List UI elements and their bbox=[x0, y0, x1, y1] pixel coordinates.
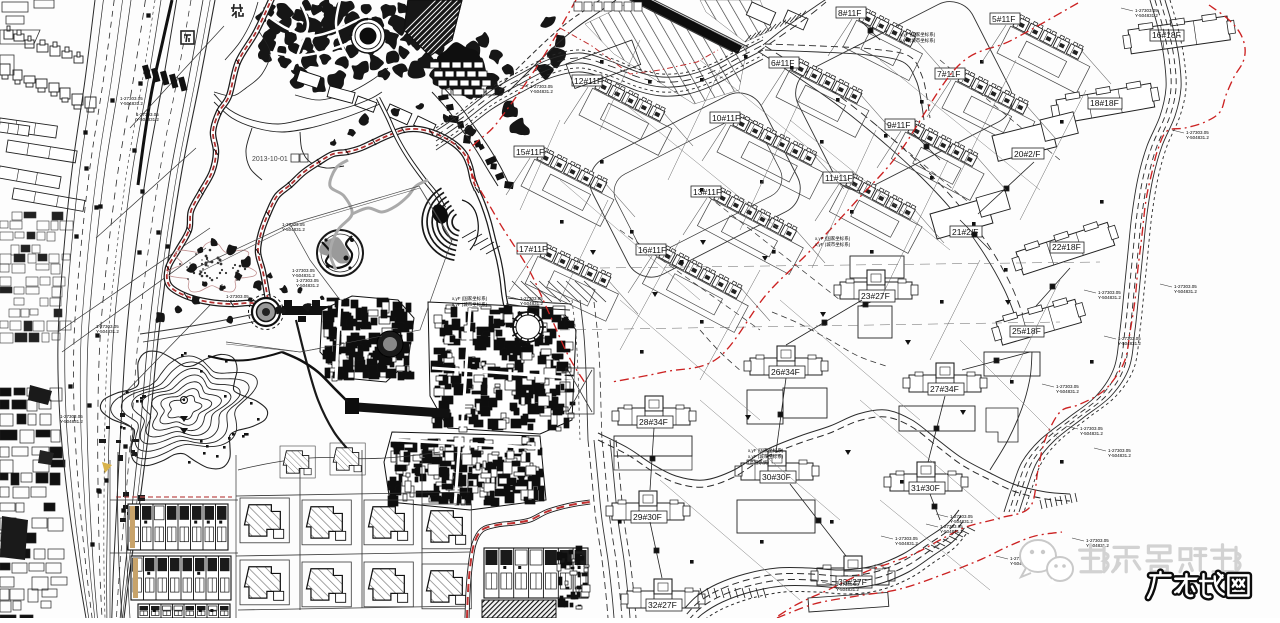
svg-text:x,yF (国家坐标系): x,yF (国家坐标系) bbox=[452, 295, 488, 302]
svg-text:17#11F: 17#11F bbox=[519, 244, 547, 254]
svg-text:x,yF (国家坐标系): x,yF (国家坐标系) bbox=[815, 235, 851, 242]
svg-text:26#34F: 26#34F bbox=[771, 367, 800, 377]
svg-text:Y-504831.2: Y-504831.2 bbox=[96, 329, 119, 334]
svg-text:x,yF (城市坐标系): x,yF (城市坐标系) bbox=[900, 37, 936, 44]
svg-text:10#11F: 10#11F bbox=[712, 113, 740, 123]
svg-text:Y-504831.2: Y-504831.2 bbox=[1080, 431, 1103, 436]
svg-text:32#27F: 32#27F bbox=[648, 600, 677, 610]
svg-text:Y-504831.2: Y-504831.2 bbox=[1118, 341, 1141, 346]
svg-text:Y-504831.2: Y-504831.2 bbox=[136, 117, 159, 122]
svg-text:30#30F: 30#30F bbox=[762, 472, 791, 482]
svg-text:Y-504831.2: Y-504831.2 bbox=[1098, 295, 1121, 300]
svg-text:5#11F: 5#11F bbox=[992, 14, 1015, 24]
svg-text:x,yF (国家坐标系): x,yF (国家坐标系) bbox=[900, 31, 936, 38]
svg-text:29#30F: 29#30F bbox=[633, 512, 662, 522]
svg-text:Y-504831.2: Y-504831.2 bbox=[520, 301, 543, 306]
svg-text:2013-10-01: 2013-10-01 bbox=[252, 156, 288, 163]
svg-text:16#18F: 16#18F bbox=[1152, 30, 1181, 40]
svg-text:(高程系统): (高程系统) bbox=[748, 459, 769, 466]
svg-text:15#11F: 15#11F bbox=[516, 147, 544, 157]
svg-text:Y-504831.2: Y-504831.2 bbox=[1186, 135, 1209, 140]
svg-text:x,yF (城市坐标系): x,yF (城市坐标系) bbox=[452, 301, 488, 308]
svg-text:9#11F: 9#11F bbox=[887, 120, 910, 130]
svg-text:11#11F: 11#11F bbox=[825, 173, 853, 183]
svg-text:Y-504831.2: Y-504831.2 bbox=[1108, 453, 1131, 458]
svg-text:31#30F: 31#30F bbox=[911, 483, 940, 493]
svg-text:8#11F: 8#11F bbox=[838, 8, 861, 18]
svg-text:Y-504831.2: Y-504831.2 bbox=[895, 541, 918, 546]
svg-text:28#34F: 28#34F bbox=[639, 417, 668, 427]
svg-text:x,yF (国家坐标系): x,yF (国家坐标系) bbox=[748, 447, 784, 454]
svg-text:16#11F: 16#11F bbox=[638, 245, 666, 255]
svg-text:7#11F: 7#11F bbox=[937, 69, 960, 79]
svg-text:Y-504831.2: Y-504831.2 bbox=[1174, 289, 1197, 294]
svg-text:12#11F: 12#11F bbox=[574, 76, 602, 86]
svg-text:Y-504831.2: Y-504831.2 bbox=[530, 89, 553, 94]
svg-text:Y-504831.2: Y-504831.2 bbox=[940, 529, 963, 534]
svg-text:20#2/F: 20#2/F bbox=[1014, 149, 1040, 159]
svg-text:Y-504831.2: Y-504831.2 bbox=[120, 101, 143, 106]
svg-text:Y-504831.2: Y-504831.2 bbox=[1056, 389, 1079, 394]
svg-text:Y-504831.2: Y-504831.2 bbox=[60, 419, 83, 424]
svg-text:13#11F: 13#11F bbox=[693, 187, 721, 197]
svg-text:22#18F: 22#18F bbox=[1052, 242, 1081, 252]
svg-text:x,yF (城市坐标系): x,yF (城市坐标系) bbox=[815, 241, 851, 248]
svg-text:Y-504831.2: Y-504831.2 bbox=[836, 587, 859, 592]
svg-text:Y-504831.2: Y-504831.2 bbox=[1135, 13, 1158, 18]
svg-text:18#18F: 18#18F bbox=[1090, 98, 1119, 108]
svg-text:27#34F: 27#34F bbox=[930, 384, 959, 394]
svg-text:23#27F: 23#27F bbox=[861, 291, 890, 301]
